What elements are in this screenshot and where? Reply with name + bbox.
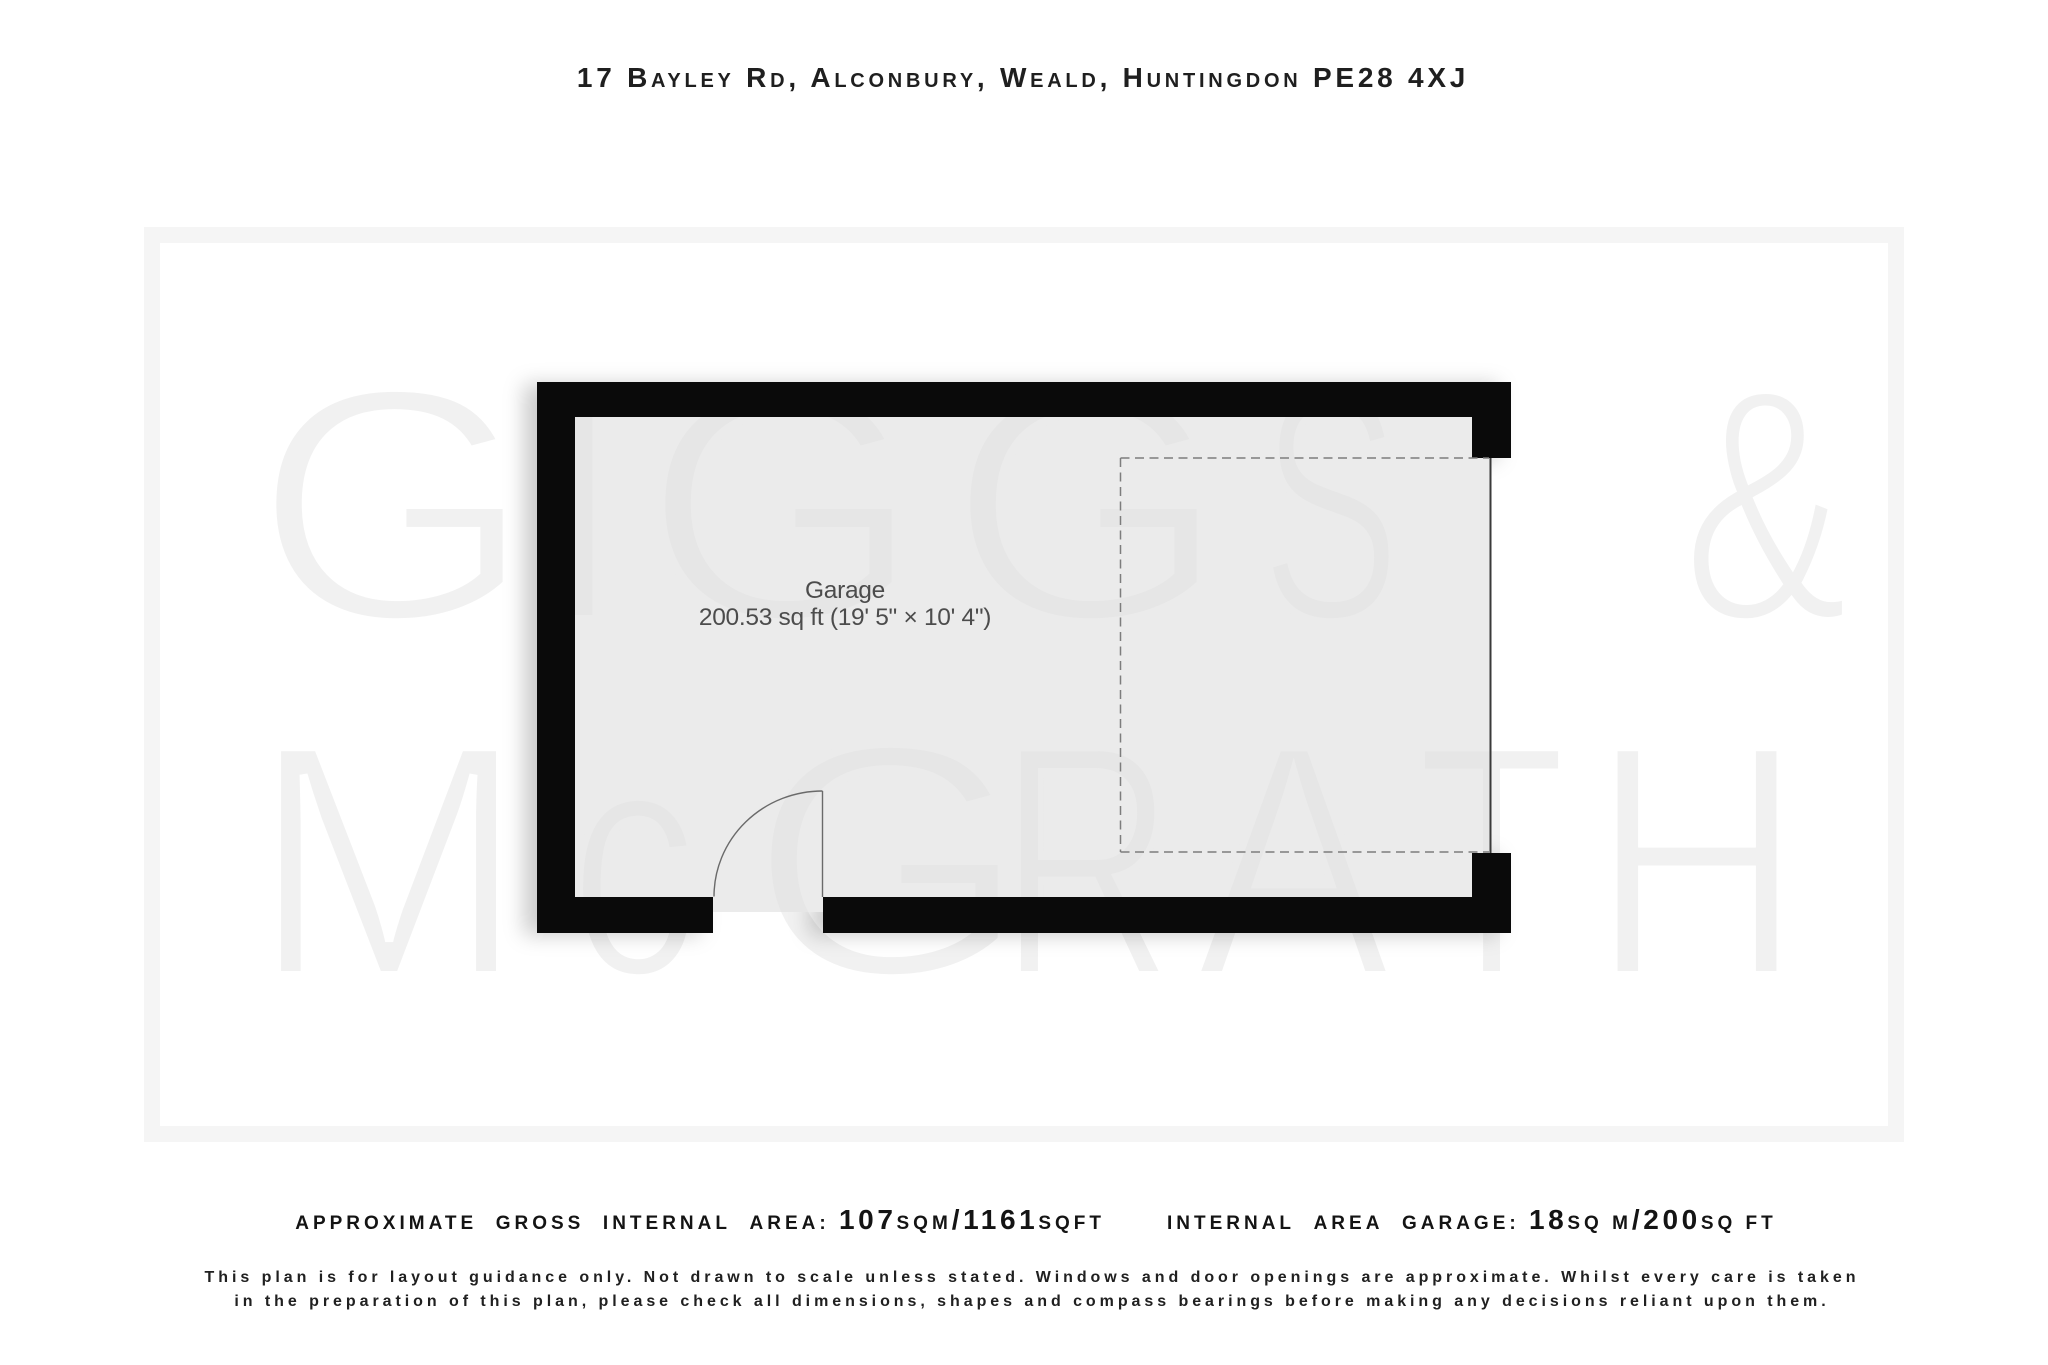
svg-text:H: H	[1590, 675, 1805, 1045]
svg-text:G: G	[254, 320, 534, 690]
svg-text:S: S	[1261, 319, 1401, 689]
svg-text:G: G	[948, 320, 1228, 690]
svg-text:&: &	[1682, 321, 1849, 690]
svg-text:A: A	[1195, 677, 1392, 1046]
svg-text:G: G	[643, 320, 923, 690]
svg-text:G: G	[749, 676, 1029, 1046]
svg-text:R: R	[998, 675, 1176, 1045]
svg-text:M: M	[250, 676, 528, 1046]
svg-text:c: c	[569, 676, 698, 1045]
